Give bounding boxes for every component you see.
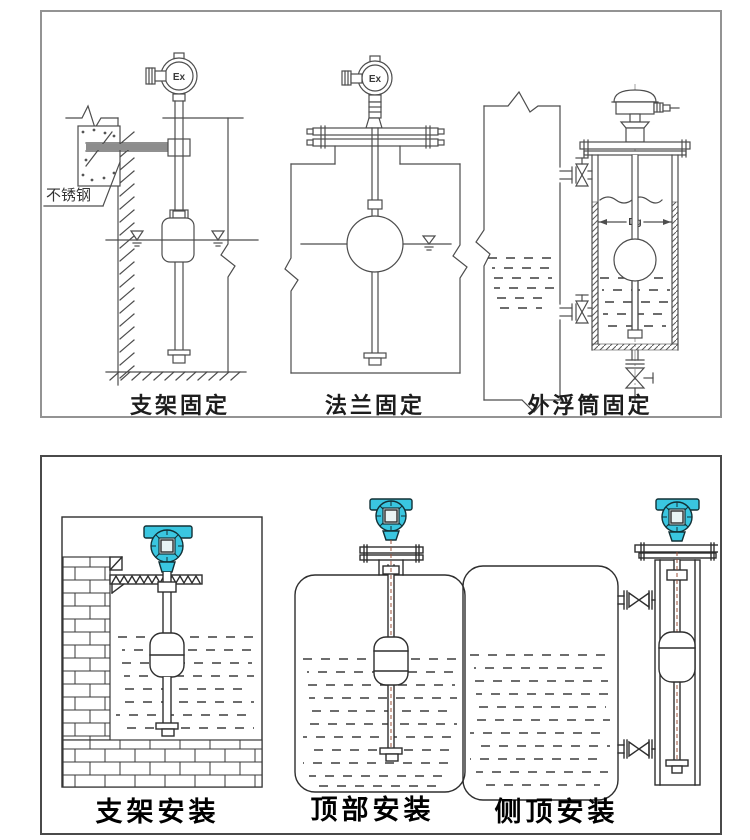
external-chamber-fixing-drawing: Dg (472, 82, 722, 417)
flange-fixing-drawing: Ex (283, 40, 473, 385)
caption-side-top-mounting: 侧顶安装 (484, 790, 629, 829)
junction-box-head (612, 90, 679, 142)
chamber-flange (635, 543, 718, 560)
installation-diagram-page: 不锈钢 Ex (0, 0, 750, 840)
ex-marking: Ex (173, 72, 186, 83)
transmitter-head (144, 526, 192, 572)
isolation-valve-top (560, 158, 592, 186)
liquid-dashes (116, 637, 254, 728)
transmitter-head (656, 499, 699, 541)
side-top-mounting-drawing (460, 472, 718, 802)
caption-top-mounting: 顶部安装 (300, 788, 445, 827)
bracket-fixing-drawing: 不锈钢 Ex (42, 14, 277, 392)
sensor-stem-and-float (347, 128, 403, 365)
caption-bracket-fixing: 支架固定 (120, 388, 240, 420)
caption-bracket-mounting: 支架安装 (85, 790, 230, 829)
sensor-stem-and-float (150, 572, 184, 736)
process-tank (476, 92, 560, 412)
support-shelf (110, 575, 202, 593)
chamber-flange (580, 140, 690, 157)
transmitter-head-ex: Ex (342, 56, 392, 128)
flange-plate (307, 126, 444, 148)
caption-flange-fixing: 法兰固定 (315, 388, 435, 420)
brick-floor (63, 740, 262, 787)
ex-marking: Ex (369, 74, 382, 85)
transmitter-head-ex: Ex (146, 53, 197, 101)
top-mounting-drawing (283, 478, 468, 798)
caption-external-chamber-fixing: 外浮筒固定 (515, 388, 665, 420)
connection-valve-bottom (618, 740, 655, 758)
connection-valve-top (618, 591, 655, 609)
isolation-valve-bottom (560, 295, 592, 323)
bracket-mounting-drawing (60, 515, 265, 790)
sensor-stem-and-float (659, 552, 695, 773)
float-chamber: Dg (592, 155, 678, 350)
stainless-steel-label: 不锈钢 (46, 187, 91, 204)
tank-outline (463, 566, 618, 800)
liquid-dashes (470, 655, 610, 785)
tank-liquid-dashes (488, 258, 556, 308)
transmitter-head (370, 499, 412, 540)
